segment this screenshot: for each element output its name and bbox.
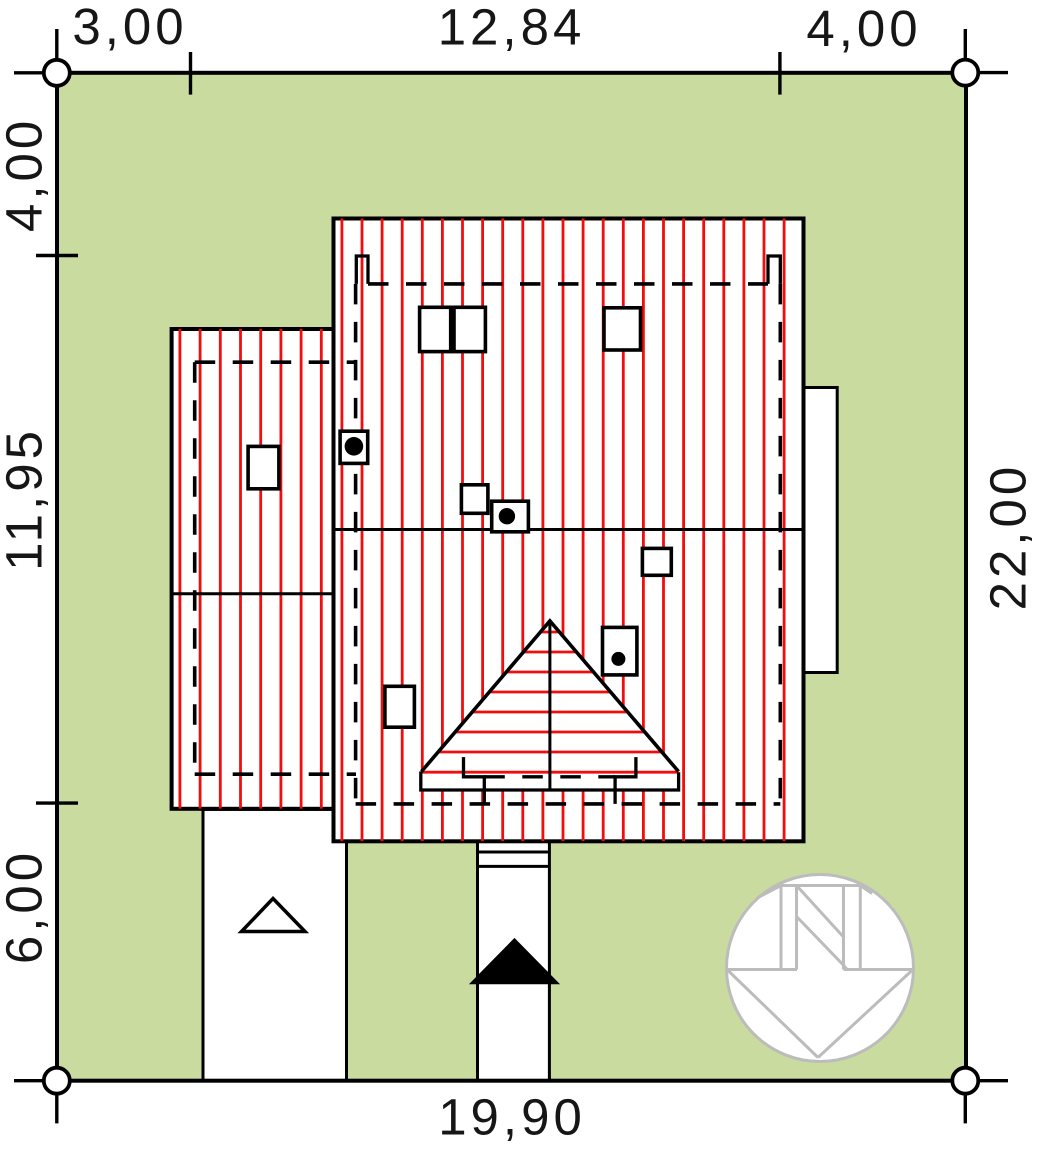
svg-text:11,95: 11,95 <box>0 427 53 571</box>
svg-text:6,00: 6,00 <box>0 849 53 964</box>
svg-text:12,84: 12,84 <box>438 0 586 56</box>
svg-text:19,90: 19,90 <box>438 1089 586 1146</box>
svg-text:4,00: 4,00 <box>806 0 921 57</box>
svg-text:4,00: 4,00 <box>0 117 53 232</box>
svg-text:3,00: 3,00 <box>72 0 187 55</box>
svg-text:22,00: 22,00 <box>979 463 1036 611</box>
